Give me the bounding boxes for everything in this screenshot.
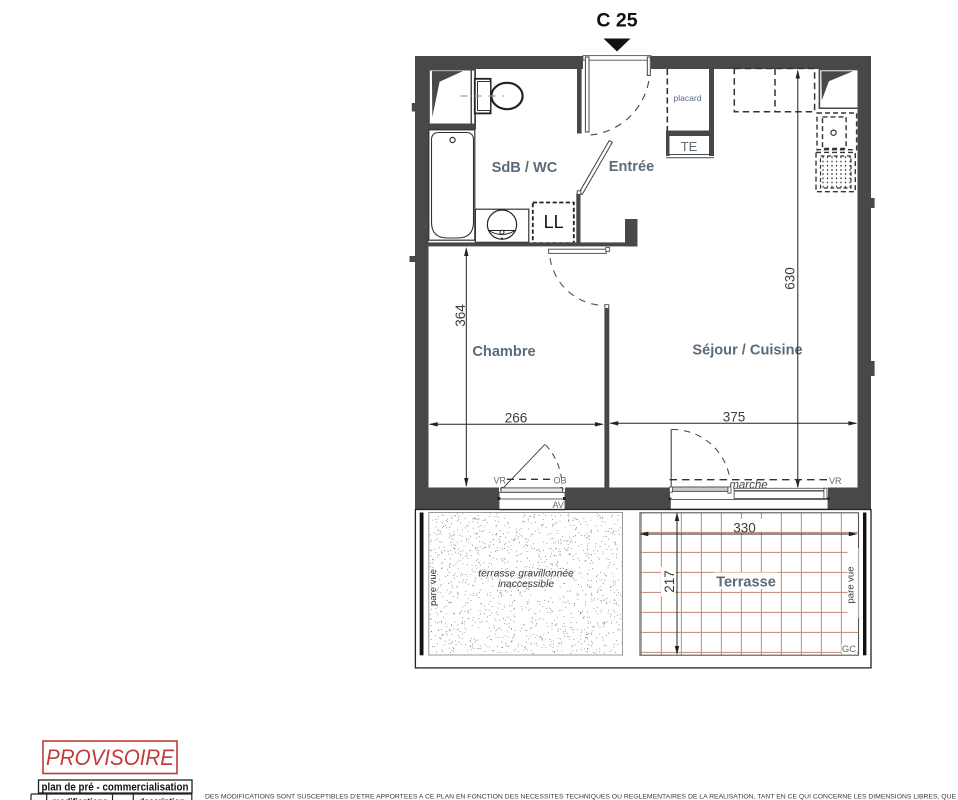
svg-text:LL: LL (544, 212, 564, 232)
svg-text:PROVISOIRE: PROVISOIRE (46, 745, 175, 770)
svg-text:Séjour / Cuisine: Séjour / Cuisine (692, 343, 802, 359)
svg-text:217: 217 (662, 570, 677, 593)
svg-text:Entrée: Entrée (609, 159, 654, 175)
svg-text:plan de pré - commercialisatio: plan de pré - commercialisation (42, 781, 189, 793)
svg-text:375: 375 (723, 409, 746, 424)
svg-text:266: 266 (505, 410, 528, 425)
svg-text:SdB / WC: SdB / WC (492, 160, 558, 176)
svg-text:inaccessible: inaccessible (498, 579, 554, 590)
svg-text:VR: VR (829, 476, 842, 486)
svg-text:DES MODIFICATIONS SONT SUSCEPT: DES MODIFICATIONS SONT SUSCEPTIBLES D'ET… (205, 794, 958, 800)
svg-text:VR: VR (494, 476, 507, 486)
svg-text:AV: AV (553, 500, 564, 510)
svg-text:description: description (139, 796, 185, 800)
svg-text:GC: GC (842, 644, 856, 655)
svg-text:364: 364 (453, 304, 468, 327)
svg-text:pare vue: pare vue (846, 567, 857, 604)
svg-text:Chambre: Chambre (472, 344, 535, 360)
svg-text:TE: TE (681, 139, 698, 154)
svg-text:Terrasse: Terrasse (716, 575, 776, 591)
svg-text:C 25: C 25 (596, 10, 637, 32)
svg-text:placard: placard (674, 93, 702, 103)
svg-text:630: 630 (783, 267, 798, 290)
svg-text:terrasse gravillonnée: terrasse gravillonnée (478, 569, 574, 580)
svg-text:330: 330 (733, 521, 756, 536)
svg-text:OB: OB (554, 476, 567, 486)
svg-text:pare vue: pare vue (428, 569, 439, 606)
svg-text:modifications: modifications (52, 796, 108, 800)
